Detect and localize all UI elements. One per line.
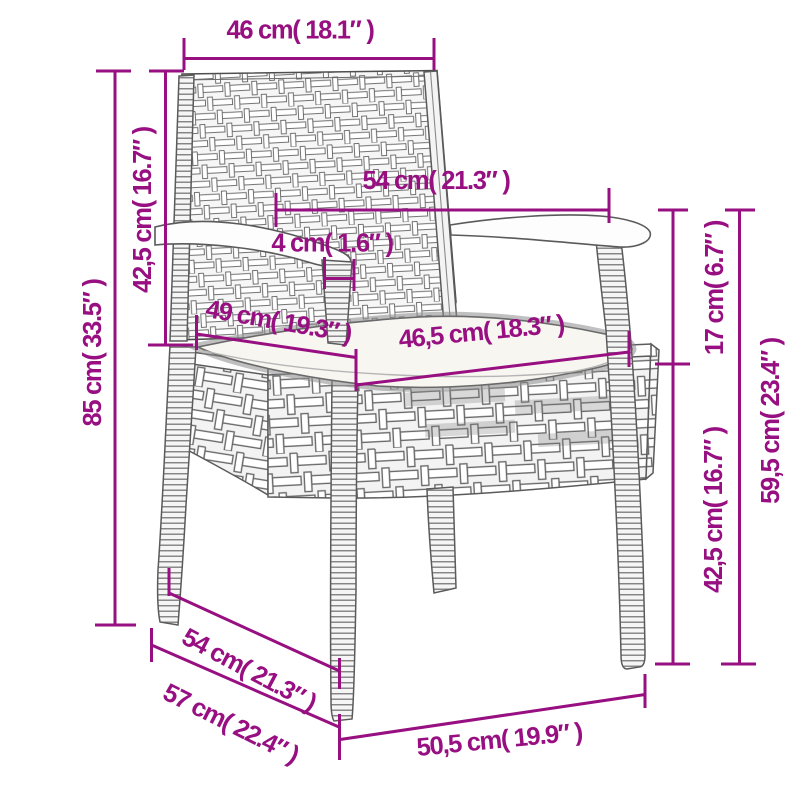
svg-text:4 cm( 1.6″ ): 4 cm( 1.6″ ) <box>271 230 393 258</box>
svg-text:17 cm( 6.7″ ): 17 cm( 6.7″ ) <box>701 220 729 355</box>
svg-text:46 cm( 18.1″ ): 46 cm( 18.1″ ) <box>226 17 374 45</box>
svg-text:42,5 cm( 16.7″ ): 42,5 cm( 16.7″ ) <box>129 126 157 293</box>
svg-text:85 cm( 33.5″ ): 85 cm( 33.5″ ) <box>79 279 107 427</box>
svg-text:42,5 cm( 16.7″ ): 42,5 cm( 16.7″ ) <box>700 426 728 593</box>
svg-text:59,5 cm( 23.4″ ): 59,5 cm( 23.4″ ) <box>757 337 785 504</box>
svg-text:54 cm( 21.3″ ): 54 cm( 21.3″ ) <box>362 167 510 195</box>
